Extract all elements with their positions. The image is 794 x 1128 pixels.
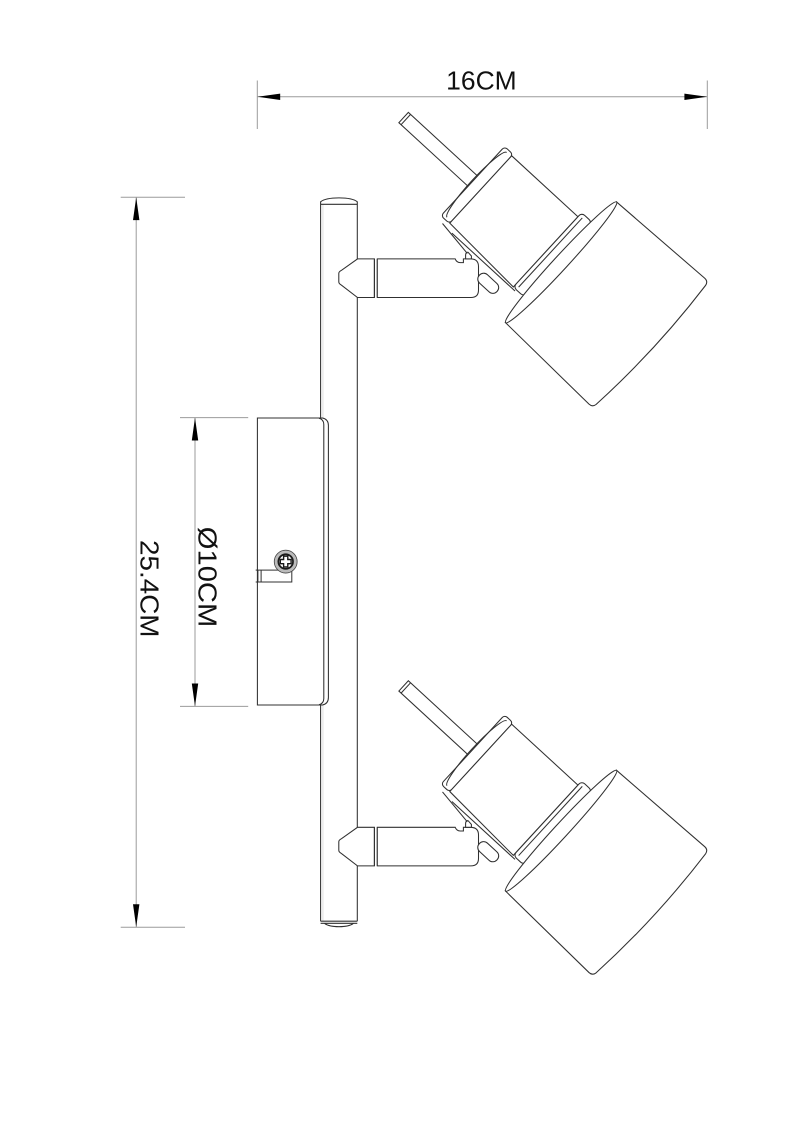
svg-text:16CM: 16CM [446, 66, 517, 96]
svg-text:Ø10CM: Ø10CM [192, 527, 222, 628]
svg-text:25.4CM: 25.4CM [135, 540, 165, 638]
